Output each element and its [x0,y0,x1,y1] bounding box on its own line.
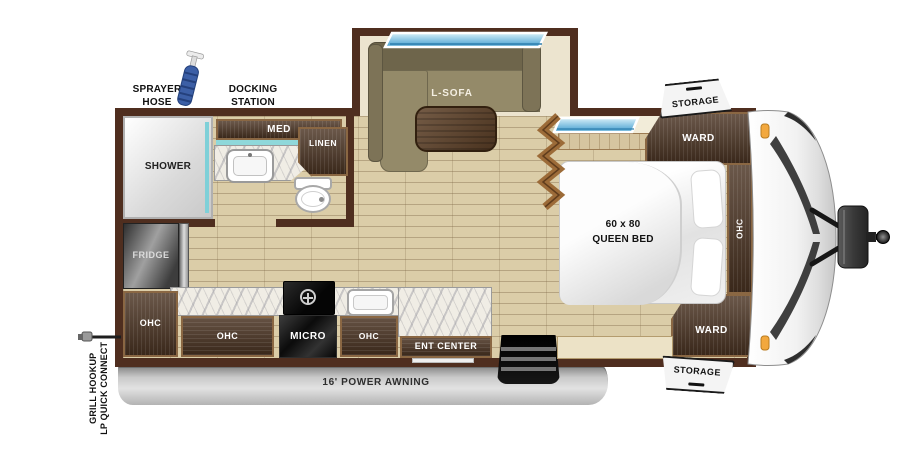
fridge: FRIDGE [123,223,179,289]
ward-front-label: WARD [682,133,715,144]
toilet-bowl [295,185,331,213]
wardrobe-front: WARD [645,112,752,165]
linen-label: LINEN [309,139,337,148]
linen-cabinet: LINEN [298,127,348,176]
overhead-cabinet-bedroom: OHC [727,163,753,294]
l-sofa-label: L-SOFA [392,88,512,101]
faucet-icon [248,153,252,157]
queen-bed: 60 x 80 QUEEN BED [559,161,726,304]
kitchen-sink-basin [353,295,388,310]
docking-station-label: DOCKING STATION [215,84,291,109]
toilet-flush-icon [319,197,324,202]
l-sofa-arm-left [368,44,383,162]
shower: SHOWER [123,116,213,219]
marker-light-icon [761,336,769,350]
shower-label: SHOWER [145,161,191,174]
ent-center: ENT CENTER [400,336,492,358]
hitch [812,206,890,268]
step-treads [501,341,556,376]
ward-rear-label: WARD [695,325,728,336]
grill-hookup-label: GRILL HOOKUP LP QUICK CONNECT [88,338,111,438]
shower-glass [205,122,209,213]
micro-label: MICRO [290,331,326,342]
pillow [690,169,724,229]
ent-center-label: ENT CENTER [415,342,478,352]
cooktop [283,281,335,315]
storage-top-label: STORAGE [671,95,719,110]
latch-dash [688,382,704,386]
fridge-label: FRIDGE [132,251,169,261]
bathroom-sink [226,149,274,183]
tv-strip [412,358,474,363]
overhead-cabinet-lower: OHC [181,316,274,357]
awning-label: 16' POWER AWNING [296,377,456,390]
bedroom-platform [557,336,673,359]
latch-dash [686,86,702,91]
ohc-wall-label: OHC [140,319,162,329]
front-cap [748,111,836,366]
marker-light-icon [761,124,769,138]
bathroom-sink-basin [233,156,267,176]
bed-label: 60 x 80 QUEEN BED [560,218,686,247]
storage-flap-bottom: STORAGE [659,355,735,394]
l-sofa-arm-right [522,44,541,112]
kitchen-sink [347,289,394,316]
pillow [690,237,724,297]
overhead-cabinet-wall: OHC [123,291,178,357]
propane-cover [838,206,868,268]
kitchen-counter-ent [398,287,492,337]
microwave: MICRO [279,315,337,358]
bath-wall-b [276,219,354,227]
entry-steps [497,335,560,384]
storage-bottom-label: STORAGE [673,364,721,377]
ohc-right-label: OHC [359,332,379,341]
ohc-lower-label: OHC [217,332,239,342]
table [415,106,497,152]
burner-cross-v [307,293,309,303]
burner-icon [300,289,316,305]
overhead-cabinet-right: OHC [340,316,398,357]
fridge-divider [179,223,189,289]
floorplan-canvas: 16' POWER AWNING L-SOFA SHOWER MED LINEN [0,0,921,462]
hitch-ball-icon [877,231,890,244]
l-sofa-back [368,42,540,72]
sprayer-hose-label: SPRAYER HOSE [121,84,193,109]
bedroom-ohc-label: OHC [735,218,744,238]
med-label: MED [267,124,291,135]
